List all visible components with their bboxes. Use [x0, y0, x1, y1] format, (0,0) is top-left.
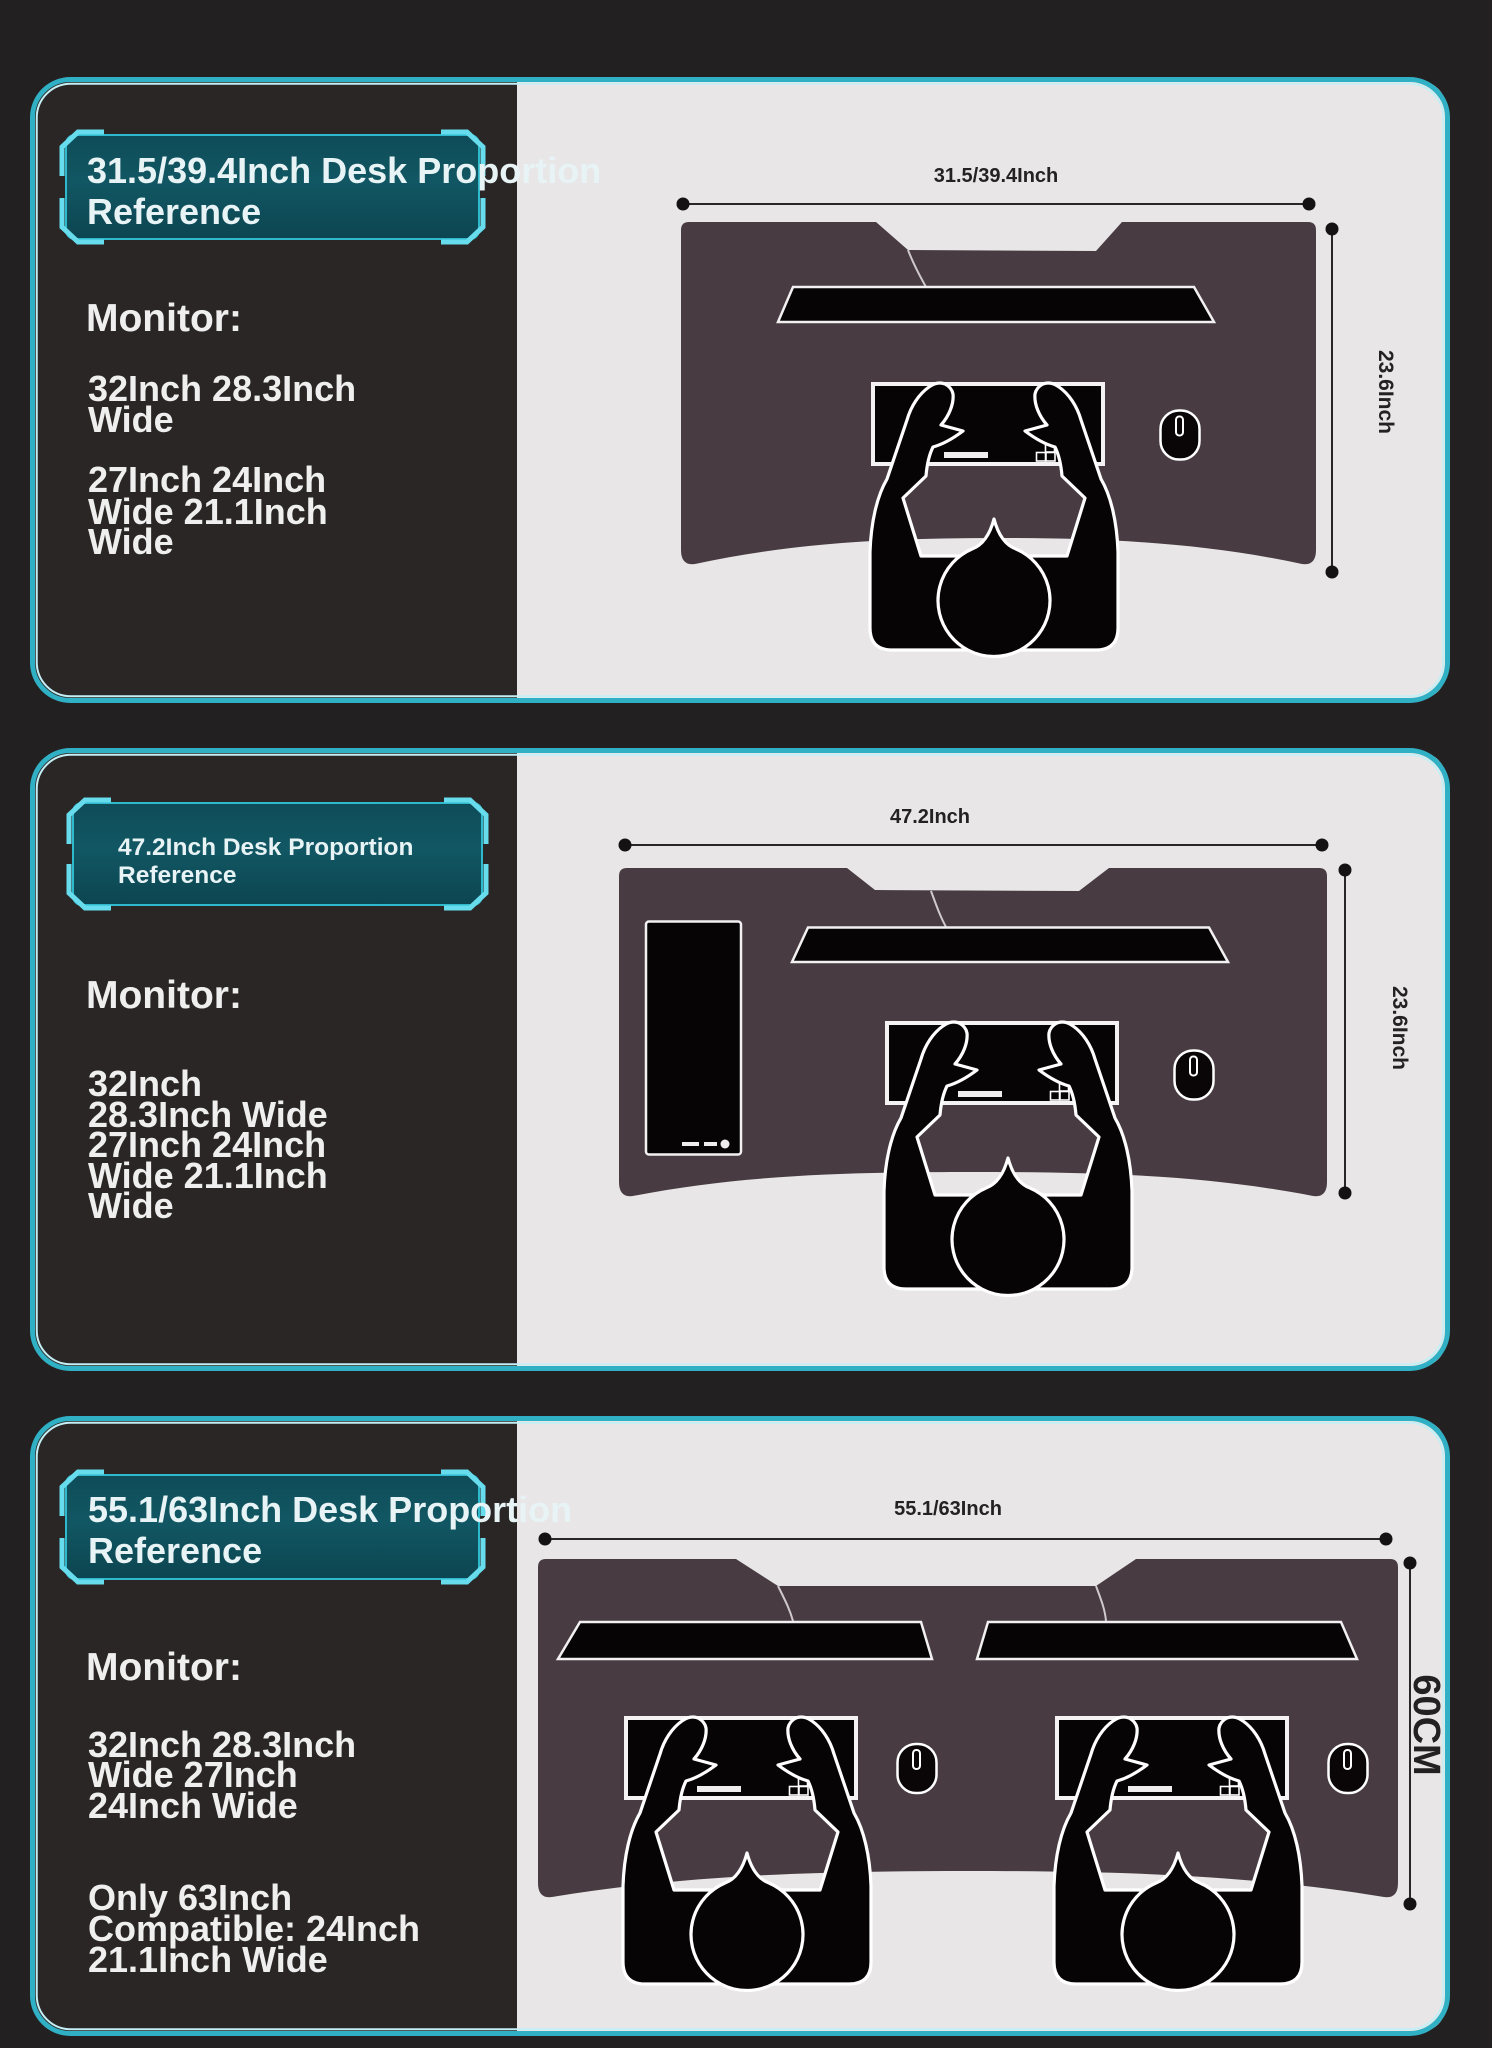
svg-text:Wide: Wide: [88, 1185, 174, 1226]
svg-text:Monitor:: Monitor:: [86, 1646, 242, 1689]
svg-text:21.1Inch Wide: 21.1Inch Wide: [88, 1939, 328, 1980]
svg-text:Reference: Reference: [88, 1530, 262, 1571]
svg-text:55.1/63Inch Desk Proportion: 55.1/63Inch Desk Proportion: [88, 1489, 572, 1530]
svg-text:23.6Inch: 23.6Inch: [1388, 986, 1411, 1070]
svg-text:Wide: Wide: [88, 521, 174, 562]
svg-text:47.2Inch Desk Proportion: 47.2Inch Desk Proportion: [118, 834, 413, 861]
svg-text:Wide: Wide: [88, 399, 174, 440]
svg-text:31.5/39.4Inch Desk Proportion: 31.5/39.4Inch Desk Proportion: [87, 150, 601, 191]
svg-text:60CM: 60CM: [1405, 1674, 1447, 1775]
svg-text:Monitor:: Monitor:: [86, 297, 242, 340]
svg-text:Reference: Reference: [87, 191, 261, 232]
svg-text:Monitor:: Monitor:: [86, 974, 242, 1017]
svg-text:Reference: Reference: [118, 862, 236, 889]
svg-text:31.5/39.4Inch: 31.5/39.4Inch: [934, 165, 1059, 187]
svg-text:47.2Inch: 47.2Inch: [890, 806, 970, 828]
svg-text:55.1/63Inch: 55.1/63Inch: [894, 1498, 1002, 1520]
svg-text:24Inch Wide: 24Inch Wide: [88, 1785, 298, 1826]
svg-text:23.6Inch: 23.6Inch: [1374, 350, 1397, 434]
